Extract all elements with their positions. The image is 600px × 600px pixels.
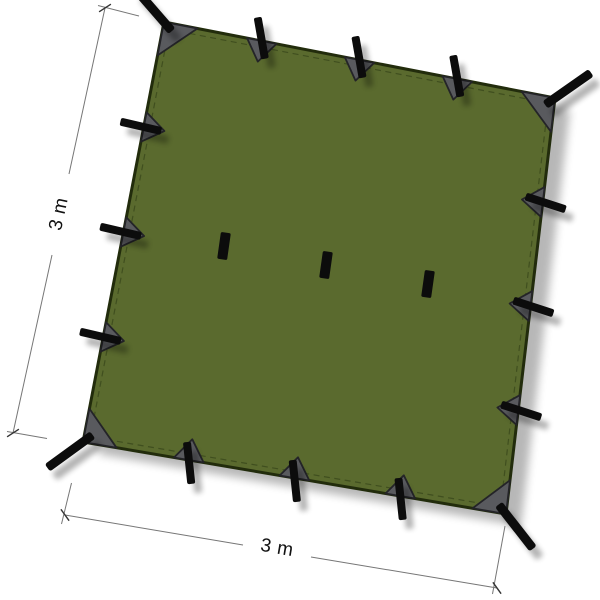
tarp-body	[83, 22, 555, 514]
tarp-product-figure: 3 m 3 m	[0, 0, 600, 600]
